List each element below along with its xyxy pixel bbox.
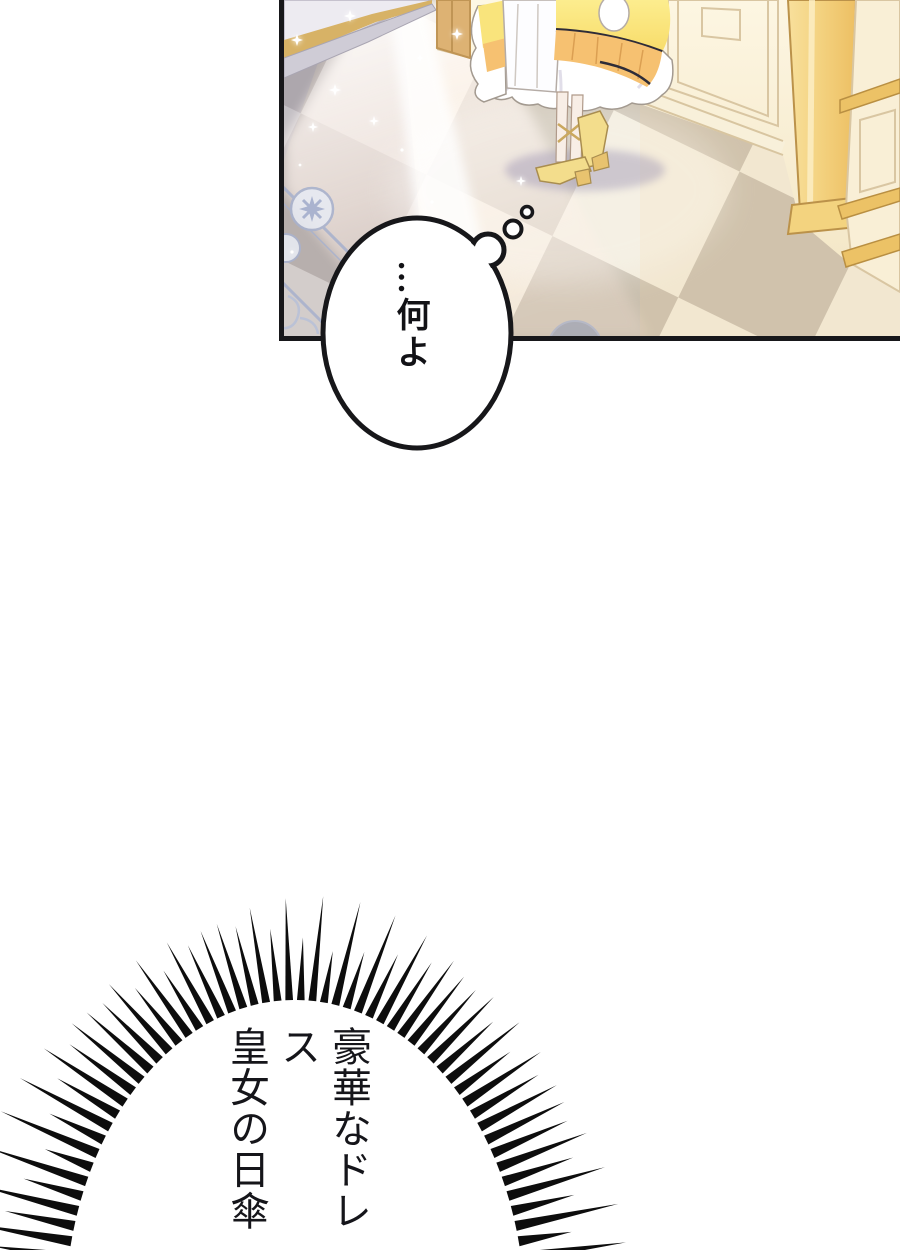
burst-spike	[511, 1195, 575, 1216]
burst-spike	[250, 908, 270, 1004]
burst-spike	[470, 1075, 539, 1119]
burst-spike	[270, 929, 281, 1002]
burst-spike	[20, 1078, 113, 1131]
burst-spike	[57, 1078, 120, 1118]
burst-spike	[496, 1133, 587, 1172]
manga-page: …何よ 豪華なドレス 皇女の日傘を パーティーに	[0, 0, 900, 1250]
gloved-hand	[599, 0, 629, 31]
burst-narration-text: 豪華なドレス 皇女の日傘を パーティーに	[218, 1026, 374, 1250]
burst-spike	[408, 977, 465, 1046]
burst-spike	[163, 971, 203, 1031]
burst-spike	[109, 984, 173, 1054]
burst-spike	[320, 951, 333, 1003]
burst-spike	[217, 924, 247, 1009]
burst-spike	[518, 1232, 572, 1246]
burst-spike	[285, 898, 293, 1000]
burst-spike	[102, 1003, 162, 1064]
burst-spike	[0, 1246, 70, 1250]
burst-spike	[427, 997, 494, 1064]
burst-spike	[167, 942, 214, 1024]
burst-spike	[0, 1147, 88, 1186]
burst-spike	[462, 1052, 541, 1107]
burst-spike	[520, 1242, 626, 1250]
burst-spike	[490, 1121, 567, 1158]
burst-spike	[188, 945, 225, 1018]
burst-spike	[354, 915, 395, 1013]
burst-spike	[136, 960, 193, 1038]
burst-spike	[418, 990, 476, 1054]
burst-spike	[5, 1211, 76, 1231]
burst-spike	[445, 1022, 519, 1084]
burst-spike	[49, 1114, 105, 1145]
thought-bubble-text: …何よ	[386, 260, 432, 430]
burst-spike	[0, 1224, 72, 1246]
burst-spike	[477, 1085, 557, 1131]
palace-hallway-panel	[0, 0, 900, 470]
burst-spike	[297, 937, 305, 1000]
thought-trail-circle	[522, 207, 533, 218]
thought-trail-circle	[505, 221, 522, 238]
burst-spike	[397, 961, 454, 1038]
burst-spike	[201, 931, 236, 1014]
burst-spike	[308, 896, 323, 1001]
burst-spike	[507, 1167, 606, 1201]
burst-spike	[45, 1149, 94, 1172]
burst-line-1: 豪華なドレス	[272, 1026, 374, 1250]
burst-spike	[236, 926, 259, 1005]
burst-spike	[69, 1044, 136, 1095]
burst-spike	[343, 952, 365, 1009]
burst-spike	[484, 1102, 564, 1144]
burst-spike	[515, 1204, 619, 1231]
burst-spike	[44, 1048, 128, 1106]
burst-spike	[135, 988, 183, 1046]
burst-spike	[365, 954, 398, 1018]
burst-spike	[436, 1022, 493, 1074]
burst-spike	[87, 1012, 154, 1073]
burst-spike	[454, 1052, 510, 1095]
burst-spike	[387, 962, 432, 1030]
burst-spike	[24, 1179, 84, 1201]
burst-spike	[331, 902, 360, 1006]
burst-spike	[502, 1158, 574, 1187]
white-drape	[503, 0, 561, 92]
panel-artwork	[192, 0, 900, 470]
burst-spike	[0, 1185, 79, 1215]
panel-border-left	[279, 0, 284, 341]
burst-line-2: 皇女の日傘を	[218, 1026, 272, 1250]
burst-spike	[1, 1111, 100, 1158]
burst-spike	[376, 935, 427, 1024]
burst-spike	[72, 1023, 145, 1084]
